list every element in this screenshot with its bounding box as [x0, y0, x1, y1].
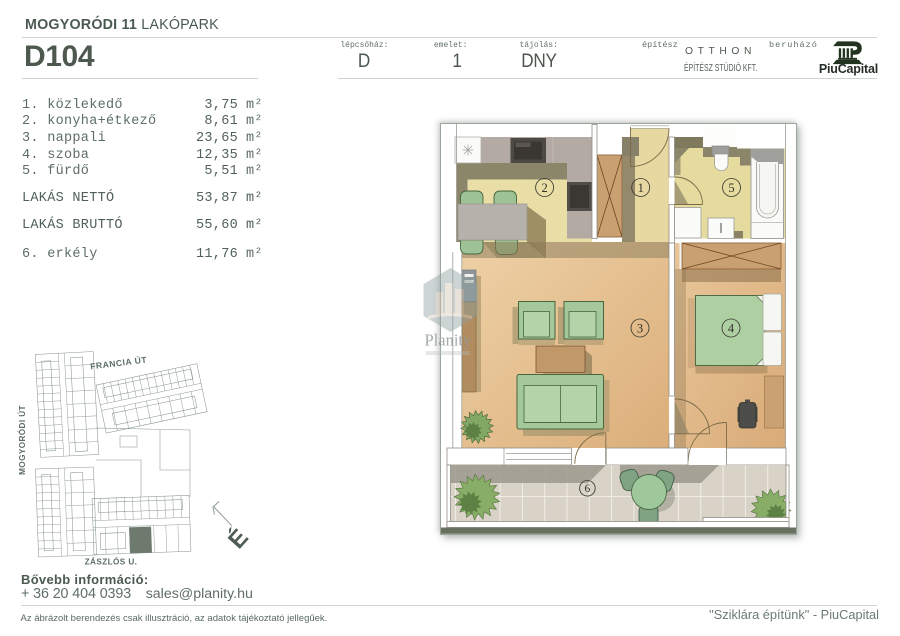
svg-text:ZÁSZLÓS U.: ZÁSZLÓS U.	[85, 556, 138, 567]
svg-text:5: 5	[728, 181, 734, 195]
svg-text:3: 3	[637, 321, 643, 335]
svg-text:FRANCIA ÚT: FRANCIA ÚT	[90, 354, 148, 372]
svg-text:É: É	[222, 523, 254, 554]
svg-text:6: 6	[585, 483, 591, 495]
svg-text:4: 4	[728, 321, 735, 335]
svg-text:1: 1	[638, 181, 644, 195]
svg-text:Planity: Planity	[425, 331, 473, 350]
svg-text:2: 2	[541, 181, 547, 195]
svg-text:MOGYORÓDI ÚT: MOGYORÓDI ÚT	[16, 405, 27, 475]
